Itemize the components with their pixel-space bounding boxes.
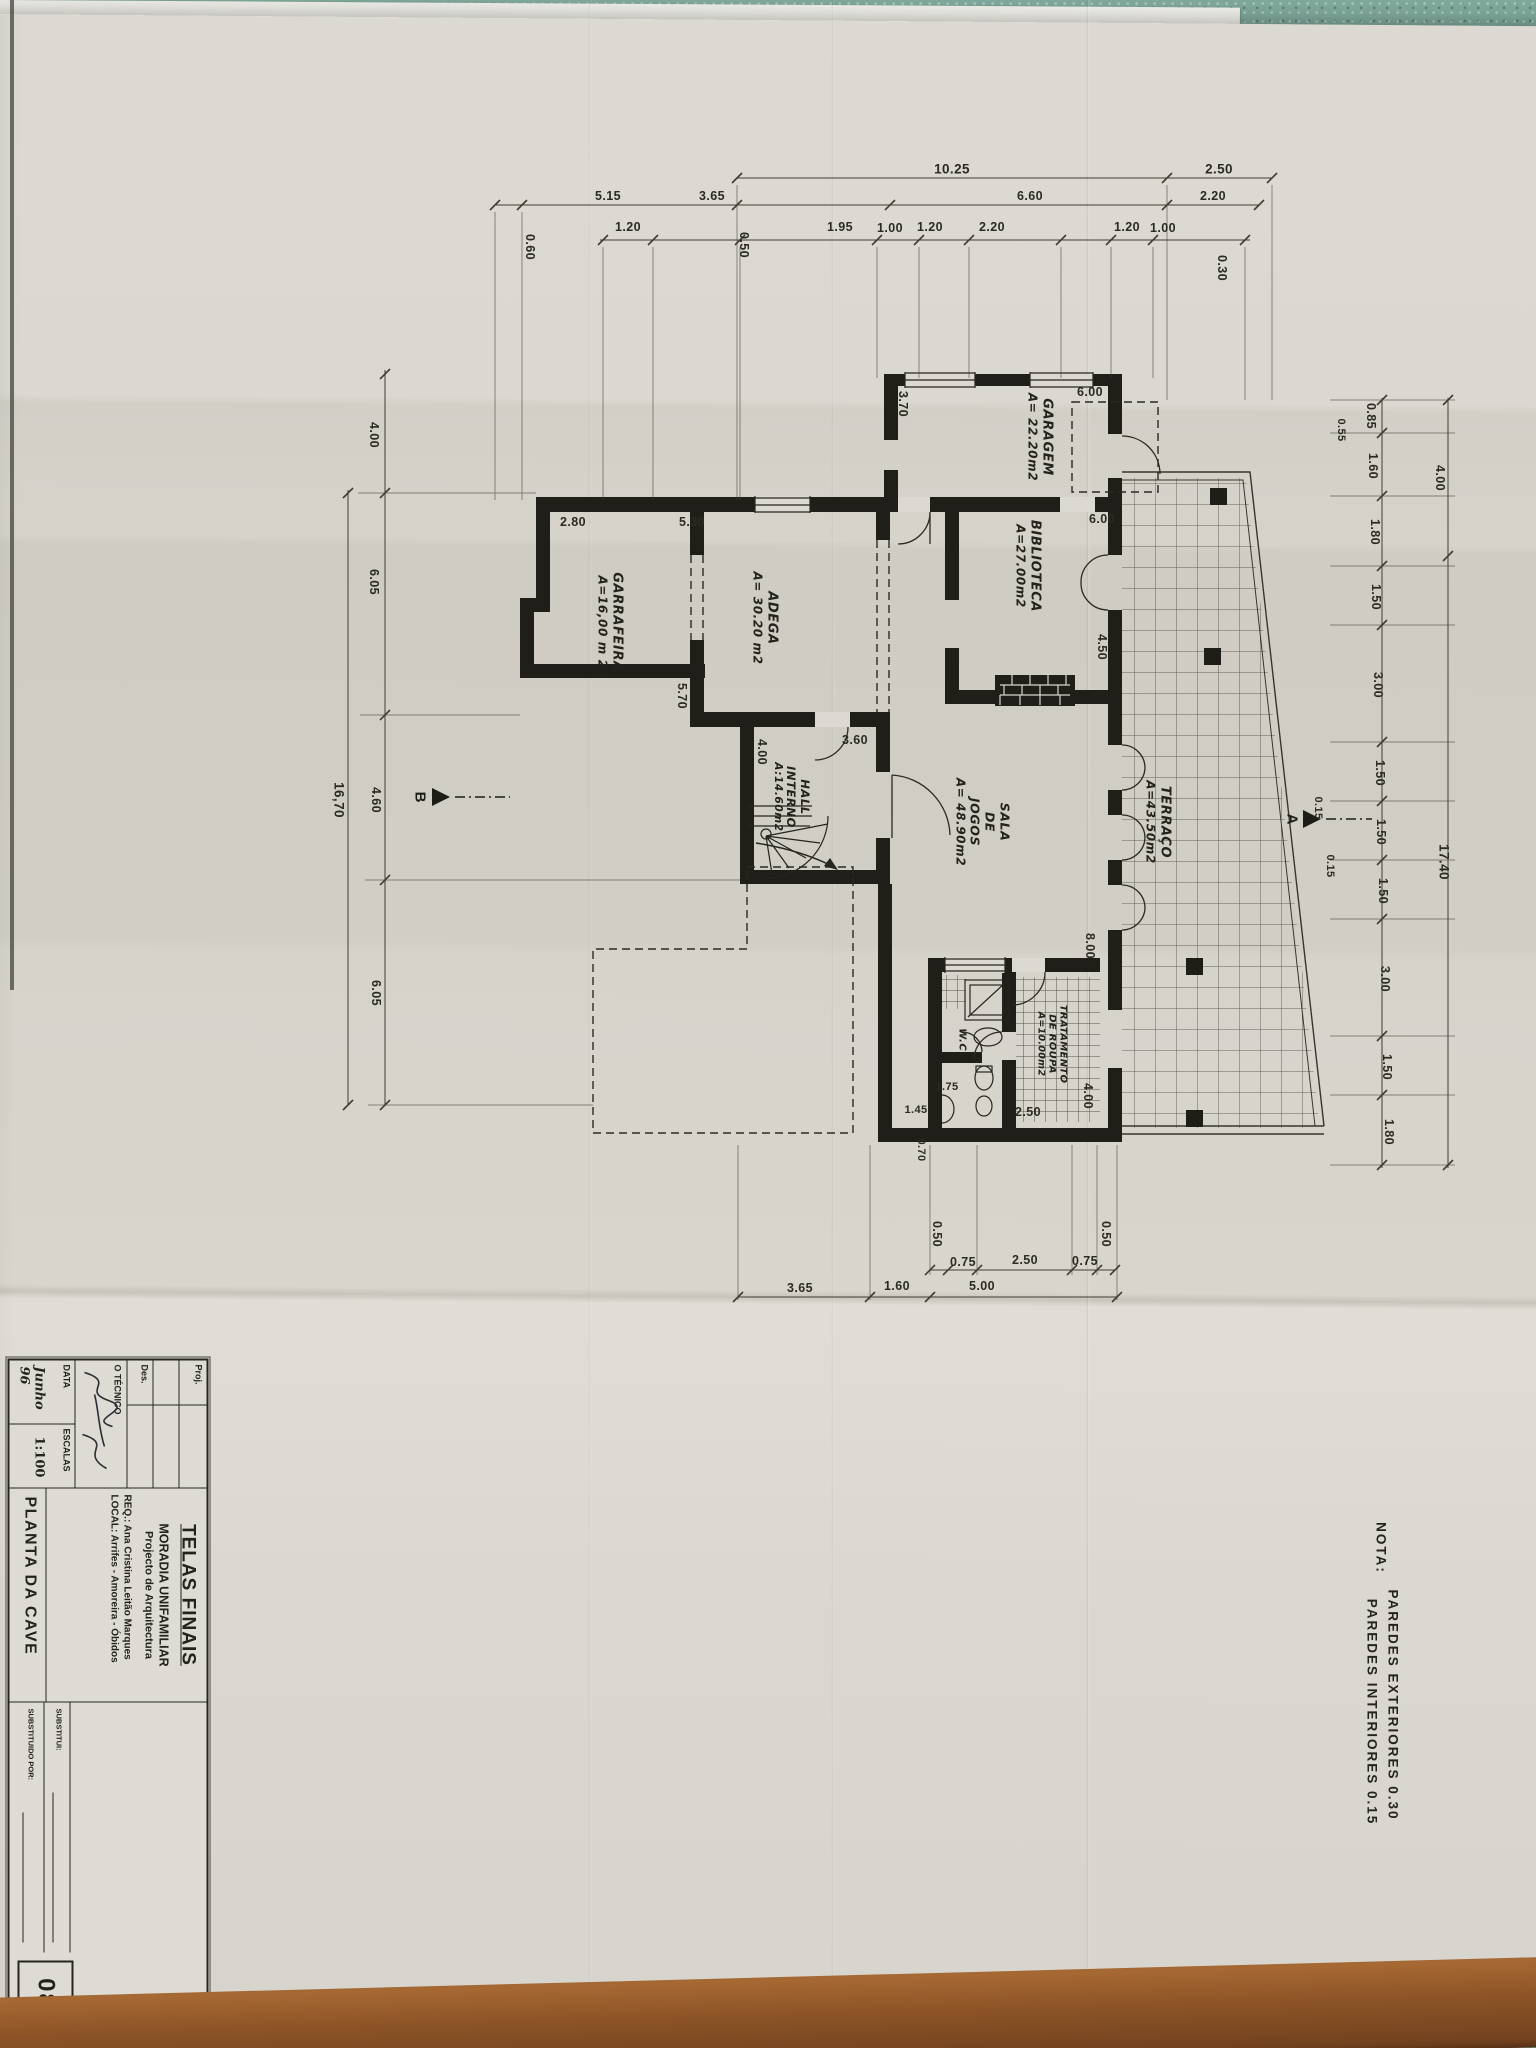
- substituido-label: SUBSTITUIDO POR:: [27, 1709, 36, 1781]
- nota-title: NOTA:: [1374, 1522, 1389, 1574]
- nota-line1: PAREDES EXTERIORES 0.30: [1386, 1589, 1401, 1820]
- escalas-label: ESCALAS: [62, 1429, 72, 1472]
- room-label-tratamento-roupa: TRATAMENTODE ROUPAA=10.00m2: [1036, 1005, 1069, 1084]
- dim: 0.85: [1364, 403, 1378, 429]
- dim: 2.20: [979, 220, 1005, 234]
- room-label-garagem: GARAGEMA= 22.20m2: [1026, 393, 1055, 481]
- room-label-sala-de-jogos: SALADEJOGOSA= 48.90m2: [954, 778, 1013, 866]
- room-label-hall: HALLINTERNOA:14.60m2: [772, 762, 812, 831]
- dim: 1.20: [1114, 220, 1140, 234]
- dim: 4.00: [755, 739, 769, 765]
- planta-da-cave-title: PLANTA DA CAVE: [21, 1497, 39, 1656]
- dim: 5.70: [675, 683, 689, 709]
- dim: 0.75: [1072, 1254, 1098, 1268]
- floor-plan-drawing: [0, 0, 1536, 2048]
- dim: 1.75: [935, 1081, 958, 1093]
- signature: [77, 1365, 125, 1485]
- dim: 2.80: [560, 515, 586, 529]
- dim: 1.50: [1369, 584, 1383, 610]
- dim: 16,70: [332, 782, 347, 818]
- data-label: DATA: [62, 1365, 72, 1389]
- dim: 0.50: [737, 232, 751, 258]
- dim: 0.60: [523, 234, 537, 260]
- dim: 1.20: [917, 220, 943, 234]
- escalas-value: 1:100: [32, 1437, 47, 1478]
- dim: 2.20: [1200, 189, 1226, 203]
- dim: 2.50: [1015, 1105, 1041, 1119]
- dim: 6.00: [1089, 512, 1115, 526]
- dim: 2.50: [1205, 162, 1233, 177]
- dim: 4.00: [1433, 465, 1447, 491]
- room-label-terraco: TERRAÇOA=43.50m2: [1144, 780, 1173, 864]
- telas-finais-title: TELAS FINAIS: [177, 1489, 199, 1702]
- req-line: REQ.: Ana Cristina Leitão Marques: [122, 1495, 133, 1702]
- dim: 8.00: [1083, 933, 1097, 959]
- titleblock-grid: Proj. Des. O TÉCNICO DATA Junho 96: [10, 1361, 207, 1489]
- proj-label: Proj.: [194, 1365, 204, 1385]
- dim: 1.00: [1150, 221, 1176, 235]
- dim: 3.70: [896, 391, 910, 417]
- dim: 4.60: [369, 787, 383, 813]
- titleblock-right: SONAVE Proj. - Fisc. Obras, Lda. Rua Her…: [10, 1703, 207, 2033]
- dim: 0.50: [1099, 1221, 1113, 1247]
- dim: 0.55: [1335, 418, 1347, 441]
- dim: 6.05: [369, 980, 383, 1006]
- dim: 6.60: [1017, 189, 1043, 203]
- photo-of-floor-plan: GARAGEMA= 22.20m2 BIBLIOTECAA=27.00m2 AD…: [0, 0, 1536, 2048]
- dim: 0.50: [930, 1221, 944, 1247]
- moradia-title: MORADIA UNIFAMILIAR: [157, 1489, 171, 1702]
- local-line: LOCAL: Arrifes - Amoreira - Óbidos: [109, 1495, 120, 1702]
- dim: 5.30: [679, 515, 705, 529]
- wc-tiles: [942, 975, 966, 1009]
- dim: 4.00: [367, 422, 381, 448]
- dim: 1.50: [1374, 819, 1388, 845]
- titleblock-project-info: TELAS FINAIS MORADIA UNIFAMILIAR Project…: [10, 1489, 207, 1703]
- section-marker-b: B: [412, 792, 429, 803]
- dim: 3.65: [787, 1281, 813, 1295]
- data-value: Junho 96: [17, 1367, 47, 1424]
- dim: 6.05: [367, 569, 381, 595]
- dim: 1.95: [827, 220, 853, 234]
- dim: 6.00: [1077, 385, 1103, 399]
- dim: 0.15: [1324, 854, 1336, 877]
- dim: 1.50: [1380, 1054, 1394, 1080]
- dim: 1.45: [904, 1104, 927, 1116]
- dim: 3.00: [1378, 966, 1392, 992]
- dim: 3.00: [1371, 672, 1385, 698]
- room-label-biblioteca: BIBLIOTECAA=27.00m2: [1014, 520, 1043, 612]
- dim: 4.50: [1095, 634, 1109, 660]
- dim: 1.80: [1368, 519, 1382, 545]
- dim: 1.00: [877, 221, 903, 235]
- projecto-subtitle: Projecto de Arquitectura: [143, 1489, 155, 1702]
- dim: 17.40: [1437, 844, 1452, 880]
- dim: 0.70: [915, 1138, 927, 1161]
- dim: 1.80: [1382, 1119, 1396, 1145]
- title-block: Proj. Des. O TÉCNICO DATA Junho 96: [8, 1359, 209, 2035]
- dim: 0.15: [1312, 796, 1324, 819]
- dim: 1.50: [1376, 878, 1390, 904]
- room-label-adega: ADEGAA= 30.20 m2: [751, 571, 780, 664]
- room-label-garrafeira: GARRAFEIRAA=16,00 m 2: [596, 572, 625, 671]
- dim: 5.15: [595, 189, 621, 203]
- dim: 0.30: [1215, 255, 1229, 281]
- dim: 4.00: [1081, 1083, 1095, 1109]
- dim: 10.25: [934, 162, 970, 177]
- des-label: Des.: [140, 1365, 150, 1384]
- dim: 3.65: [699, 189, 725, 203]
- nota-line2: PAREDES INTERIORES 0.15: [1365, 1599, 1380, 1826]
- dim: 0.75: [950, 1255, 976, 1269]
- dim: 5.00: [969, 1279, 995, 1293]
- dim: 1.60: [884, 1279, 910, 1293]
- dim: 1.60: [1366, 453, 1380, 479]
- fireplace: [995, 675, 1075, 706]
- room-label-wc: W.C.: [957, 1028, 968, 1056]
- dim: 1.20: [615, 220, 641, 234]
- substitui-label: SUBSTITUI:: [55, 1709, 64, 1751]
- dim: 1.50: [1373, 760, 1387, 786]
- dim: 2.50: [1012, 1253, 1038, 1267]
- dim: 3.60: [842, 733, 868, 747]
- section-marker-a: A: [1284, 814, 1301, 825]
